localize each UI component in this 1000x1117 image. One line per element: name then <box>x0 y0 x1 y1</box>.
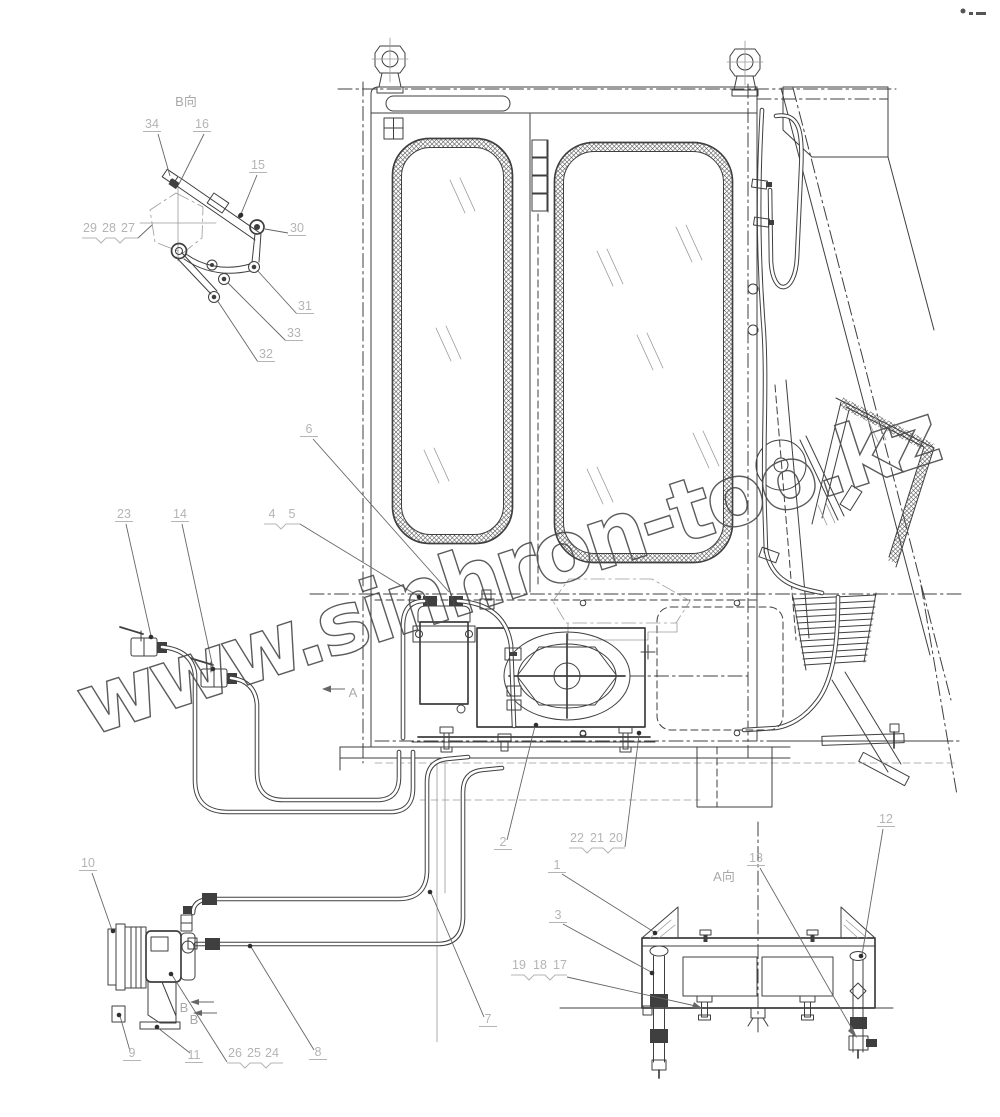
callout-11: 11 <box>188 1048 201 1062</box>
callout-25: 25 <box>247 1046 261 1060</box>
callout-20: 20 <box>609 831 623 845</box>
corner-logo <box>961 9 987 16</box>
detail-view-b <box>140 169 264 302</box>
view-label-1: A向 <box>713 869 735 884</box>
callout-31: 31 <box>298 299 312 313</box>
roof-rear-box <box>783 87 888 157</box>
callout-28: 28 <box>102 221 116 235</box>
callout-12: 12 <box>879 812 893 826</box>
view-label-3: B <box>180 1000 189 1015</box>
callout-29: 29 <box>83 221 97 235</box>
callout-34: 34 <box>145 117 159 131</box>
floor-plate <box>657 607 783 730</box>
callout-4: 4 <box>269 507 276 521</box>
callout-32: 32 <box>259 347 273 361</box>
callout-6: 6 <box>306 422 313 436</box>
hose-inner <box>196 768 502 944</box>
callout-16: 16 <box>195 117 209 131</box>
callout-26: 26 <box>228 1046 242 1060</box>
condenser-pipe-left <box>643 946 668 1078</box>
callout-3: 3 <box>555 908 562 922</box>
latch-block <box>384 118 403 139</box>
callout-13: 13 <box>749 851 763 865</box>
evaporator-box <box>477 628 645 727</box>
callout-19: 19 <box>512 958 526 972</box>
turnbuckle <box>207 193 229 213</box>
view-label-4: B <box>190 1012 199 1027</box>
callout-10: 10 <box>81 856 95 870</box>
callout-22: 22 <box>570 831 584 845</box>
technical-drawing: 3416153029282731333223144561091126252487… <box>0 0 1000 1117</box>
callout-1: 1 <box>554 858 561 872</box>
callout-15: 15 <box>251 158 265 172</box>
callout-9: 9 <box>129 1046 136 1060</box>
callout-24: 24 <box>265 1046 279 1060</box>
drawing-canvas: 3416153029282731333223144561091126252487… <box>0 0 1000 1117</box>
t-bolt <box>440 727 453 752</box>
left-window <box>393 139 513 544</box>
view-direction-arrows <box>190 686 345 1017</box>
hose-crimp <box>205 938 220 950</box>
hose-inner <box>193 757 468 913</box>
view-label-2: A <box>349 685 358 700</box>
roof-handle <box>386 96 510 111</box>
callout-27: 27 <box>121 221 135 235</box>
blower-fan <box>504 632 748 720</box>
callout-17: 17 <box>553 958 567 972</box>
condenser-mesh-left <box>683 957 757 996</box>
callout-21: 21 <box>590 831 604 845</box>
t-bolt <box>619 727 632 752</box>
flange-plate <box>822 734 904 746</box>
lifting-eye-right <box>727 41 763 96</box>
callout-7: 7 <box>485 1012 492 1026</box>
hose-crimp <box>202 893 217 905</box>
glass-reflection <box>424 178 475 483</box>
callout-5: 5 <box>289 507 296 521</box>
view-label-0: B向 <box>175 94 197 109</box>
condenser-pipe-right <box>849 952 877 1059</box>
callout-23: 23 <box>117 507 131 521</box>
callout-2: 2 <box>500 835 507 849</box>
hose-inner <box>766 550 822 593</box>
callout-18: 18 <box>533 958 547 972</box>
callout-33: 33 <box>287 326 301 340</box>
step-box <box>697 747 772 807</box>
callout-8: 8 <box>315 1045 322 1059</box>
cab-roof <box>371 87 757 113</box>
hose-inner <box>770 115 802 287</box>
callout-14: 14 <box>173 507 187 521</box>
compressor-bracket <box>148 982 176 1023</box>
lifting-eye-left <box>372 38 408 93</box>
callout-30: 30 <box>290 221 304 235</box>
